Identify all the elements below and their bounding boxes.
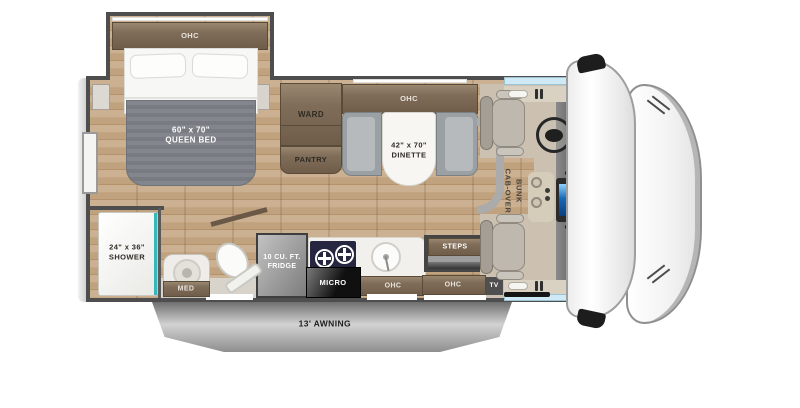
door-vent-icon [535, 89, 538, 99]
passenger-seat [480, 214, 536, 280]
cooktop [310, 241, 356, 270]
bath-sink-drain [182, 268, 192, 278]
dinette-window [353, 79, 467, 83]
driver-seat [480, 90, 536, 156]
awning: 13' AWNING [152, 302, 512, 352]
shower-glass [154, 213, 157, 295]
window [367, 294, 417, 300]
shifter-knob [545, 188, 550, 193]
driver-door-window [504, 77, 568, 85]
dinette-bench-right [436, 112, 478, 176]
seat-cushion [492, 99, 525, 147]
window [206, 294, 253, 300]
seat-armrest [496, 214, 524, 223]
burner-icon [315, 249, 334, 268]
entry-steps-well [424, 235, 486, 272]
cab-over-bunk-label-line1: CAB-OVER [504, 169, 513, 214]
sheet-fold [125, 97, 257, 99]
rear-window [82, 132, 98, 194]
step-tread [428, 262, 482, 269]
dinette-label: 42" x 70" DINETTE [391, 140, 427, 160]
burner-icon [335, 245, 354, 264]
door-handle [508, 282, 528, 290]
seat-armrest [496, 147, 524, 156]
pillow [130, 53, 187, 79]
bench-cushion [445, 117, 473, 171]
bench-cushion [347, 117, 375, 171]
bath-wall [88, 206, 164, 210]
dinette-ohc-label: OHC [400, 94, 418, 104]
steering-hub [545, 129, 563, 142]
dinette-bench-left [342, 112, 382, 176]
cab-over-cap [566, 60, 636, 318]
tv-label: TV [489, 282, 498, 290]
pillow [192, 53, 249, 79]
door-vent-icon [535, 281, 538, 291]
tv-screen [504, 292, 550, 297]
cup-holder-icon [531, 177, 542, 188]
cup-holder-icon [531, 197, 542, 208]
wardrobe-shelf-line [281, 125, 341, 126]
galley-ohc-label: OHC [385, 281, 402, 290]
shifter-knob [545, 196, 550, 201]
wardrobe-label: WARD [298, 110, 324, 120]
pantry-label: PANTRY [295, 155, 327, 165]
med-label: MED [178, 284, 195, 293]
bedroom-ohc-label: OHC [181, 31, 199, 41]
steps-label: STEPS [443, 242, 468, 251]
door-vent-icon [540, 281, 543, 291]
queen-bed-label: 60" x 70" QUEEN BED [165, 126, 216, 147]
fridge-label: 10 CU. FT. FRIDGE [263, 253, 300, 271]
awning-label: 13' AWNING [299, 318, 351, 329]
door-vent-icon [540, 89, 543, 99]
front-cap [626, 84, 702, 324]
seat-armrest [496, 271, 524, 280]
cab-over-bunk-label-line2: BUNK [515, 179, 524, 203]
slideout-window [112, 17, 268, 21]
seat-cushion [492, 223, 525, 271]
door-handle [508, 90, 528, 98]
kitchen-sink [371, 242, 401, 272]
nightstand-left [92, 84, 110, 110]
microwave-label: MICRO [320, 278, 347, 288]
bath-wall-vertical [158, 208, 161, 298]
entry-ohc-label: OHC [445, 280, 462, 289]
shower-label: 24" x 36" SHOWER [109, 242, 145, 262]
floorplan-canvas: 13' AWNING OHC 60" x 70" QUEEN BED WARD … [0, 0, 800, 408]
